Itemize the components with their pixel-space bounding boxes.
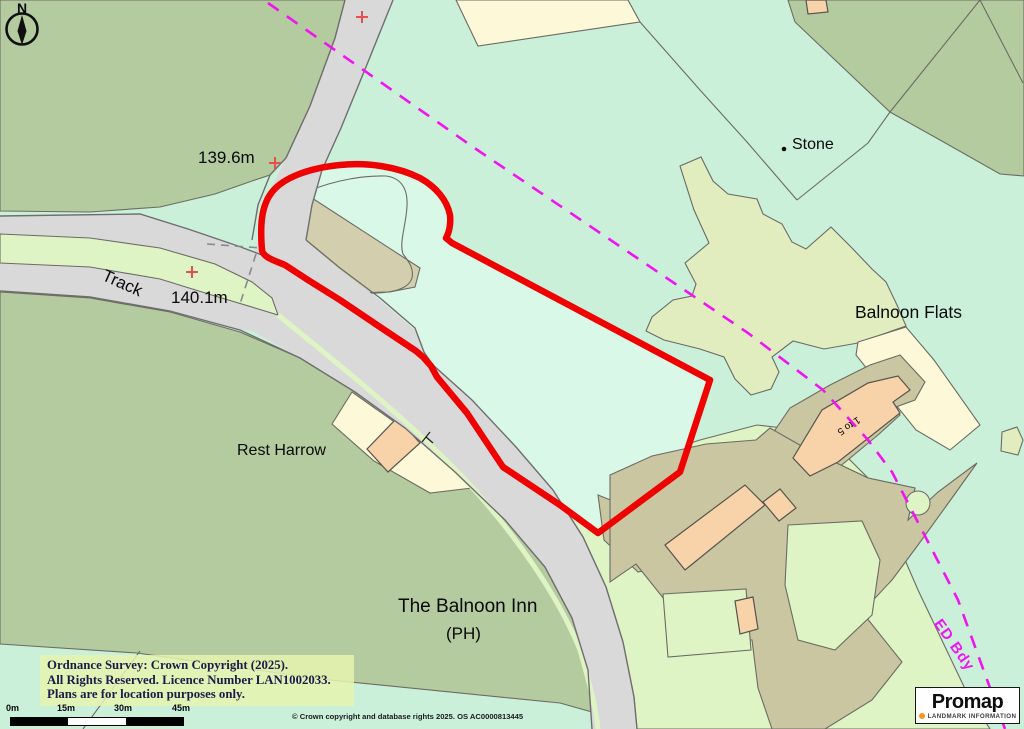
- promap-dot-icon: [919, 713, 925, 719]
- label-stone: Stone: [792, 136, 834, 154]
- copyright-line-1: Ordnance Survey: Crown Copyright (2025).: [47, 658, 347, 673]
- north-label: N: [17, 0, 27, 16]
- promap-brand: Promap: [932, 692, 1003, 712]
- label-elevation-1: 139.6m: [198, 148, 255, 168]
- label-balnoon-inn-ph: (PH): [446, 624, 481, 644]
- copyright-line-2: All Rights Reserved. Licence Number LAN1…: [47, 673, 347, 688]
- building-top-right: [806, 0, 828, 14]
- scale-tick-0: 0m: [6, 703, 19, 713]
- os-map: N: [0, 0, 1024, 729]
- scale-tick-15: 15m: [57, 703, 75, 713]
- promap-subtitle: LANDMARK INFORMATION: [928, 713, 1017, 720]
- scale-tick-45: 45m: [172, 703, 190, 713]
- label-balnoon-inn: The Balnoon Inn: [398, 596, 537, 618]
- label-balnoon-flats: Balnoon Flats: [855, 302, 962, 323]
- promap-logo: Promap LANDMARK INFORMATION: [915, 687, 1020, 724]
- label-elevation-2: 140.1m: [171, 288, 228, 308]
- os-attribution: © Crown copyright and database rights 20…: [292, 712, 523, 721]
- map-canvas: N 139.6m 140.1m Track Rest Harrow The Ba…: [0, 0, 1024, 729]
- scale-tick-30: 30m: [114, 703, 132, 713]
- copyright-box: Ordnance Survey: Crown Copyright (2025).…: [40, 655, 354, 706]
- scale-bar-graphic: [10, 717, 184, 726]
- stone-point: [782, 147, 787, 152]
- copyright-line-3: Plans are for location purposes only.: [47, 687, 347, 702]
- garden-parcel-3: [906, 491, 930, 515]
- label-rest-harrow: Rest Harrow: [237, 442, 326, 460]
- scale-bar: 0m 15m 30m 45m: [0, 703, 200, 713]
